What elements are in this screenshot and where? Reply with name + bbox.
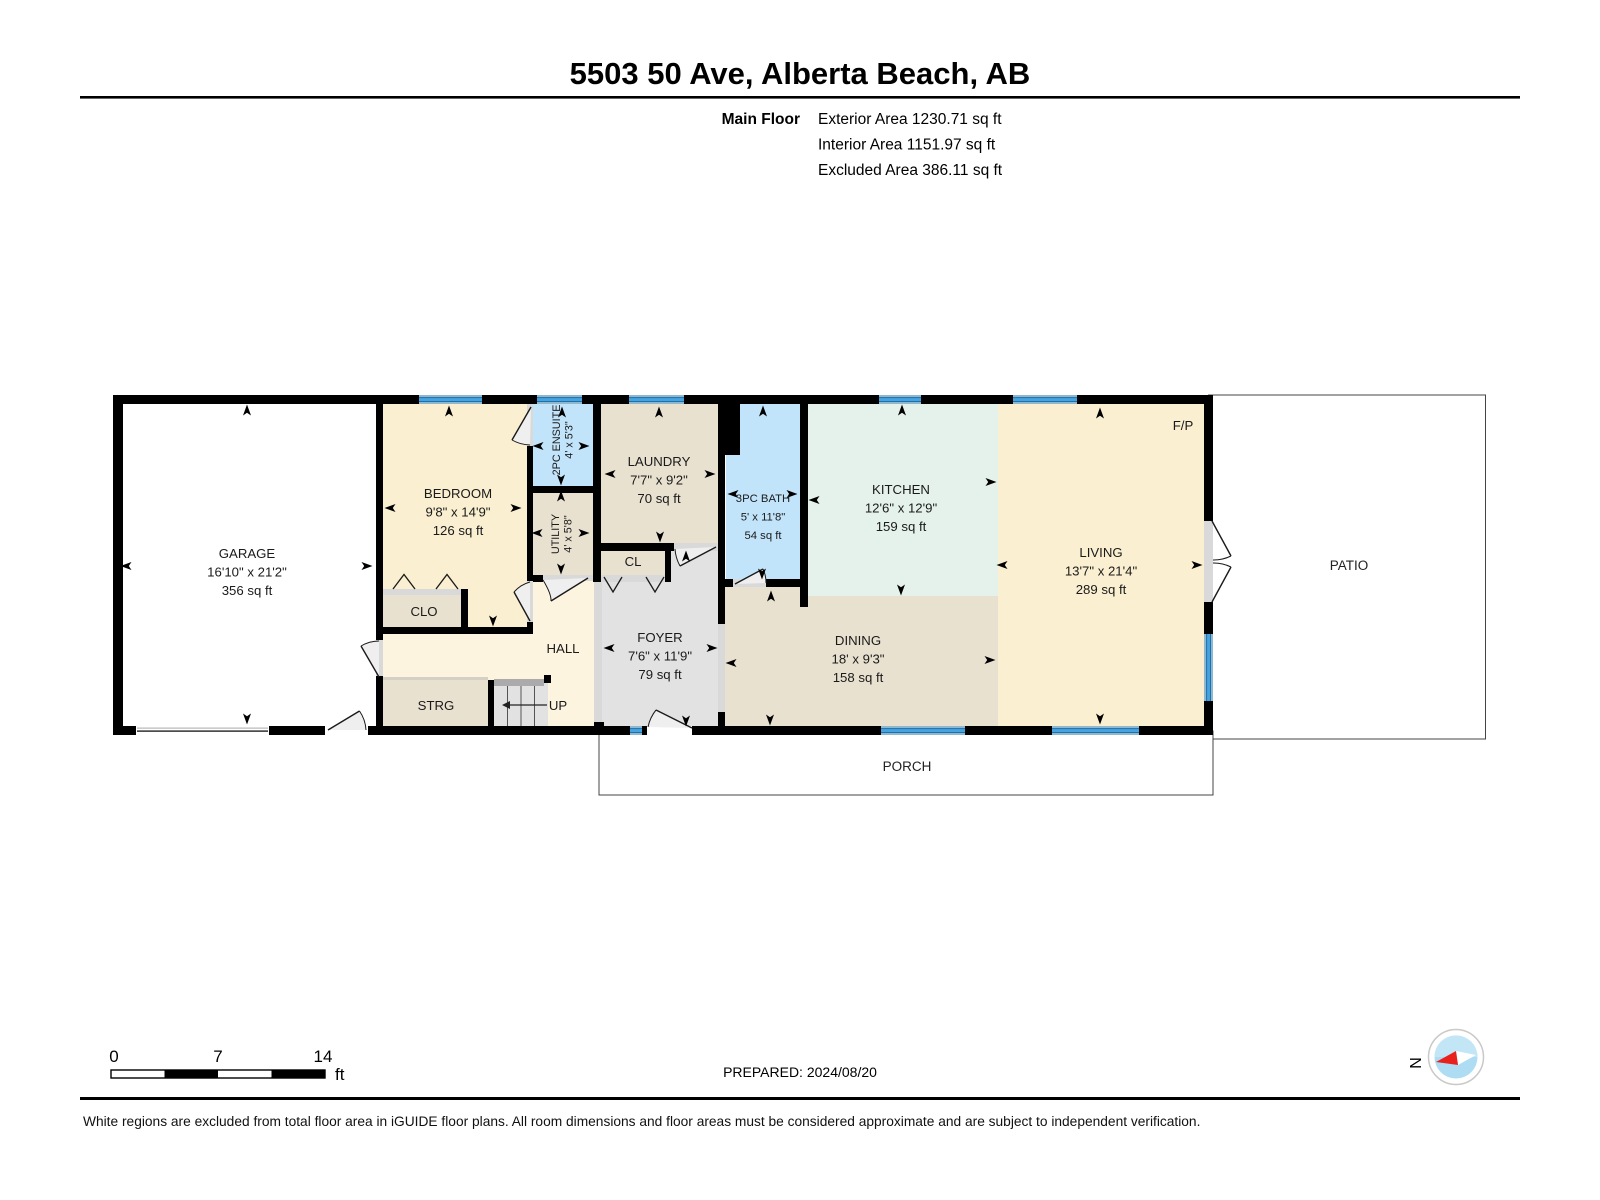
svg-text:18' x 9'3": 18' x 9'3" bbox=[832, 652, 885, 667]
svg-text:289 sq ft: 289 sq ft bbox=[1076, 582, 1127, 597]
svg-text:UTILITY: UTILITY bbox=[550, 514, 562, 554]
svg-text:159 sq ft: 159 sq ft bbox=[876, 519, 927, 534]
svg-text:7'7" x 9'2": 7'7" x 9'2" bbox=[630, 473, 688, 488]
svg-text:4' x 5'8": 4' x 5'8" bbox=[563, 515, 575, 553]
svg-text:2PC ENSUITE: 2PC ENSUITE bbox=[551, 405, 563, 476]
svg-text:356 sq ft: 356 sq ft bbox=[222, 583, 273, 598]
svg-text:12'6" x 12'9": 12'6" x 12'9" bbox=[865, 501, 938, 516]
svg-text:9'8" x 14'9": 9'8" x 14'9" bbox=[426, 505, 491, 520]
svg-text:14: 14 bbox=[314, 1047, 333, 1066]
svg-text:PORCH: PORCH bbox=[883, 759, 932, 774]
svg-text:7'6" x 11'9": 7'6" x 11'9" bbox=[628, 649, 692, 664]
svg-text:79 sq ft: 79 sq ft bbox=[638, 667, 682, 682]
svg-text:5503 50 Ave, Alberta Beach, AB: 5503 50 Ave, Alberta Beach, AB bbox=[570, 56, 1031, 91]
svg-text:Exterior Area 1230.71 sq ft: Exterior Area 1230.71 sq ft bbox=[818, 111, 1002, 128]
svg-text:7: 7 bbox=[213, 1047, 222, 1066]
svg-text:FOYER: FOYER bbox=[637, 630, 682, 645]
svg-text:Excluded Area 386.11 sq ft: Excluded Area 386.11 sq ft bbox=[818, 162, 1003, 179]
svg-text:54 sq ft: 54 sq ft bbox=[744, 530, 782, 542]
svg-text:PATIO: PATIO bbox=[1330, 558, 1369, 573]
svg-text:70 sq ft: 70 sq ft bbox=[637, 491, 681, 506]
svg-text:DINING: DINING bbox=[835, 633, 881, 648]
svg-text:CLO: CLO bbox=[410, 604, 437, 619]
svg-text:Main Floor: Main Floor bbox=[722, 111, 800, 128]
svg-text:LIVING: LIVING bbox=[1079, 545, 1122, 560]
svg-text:CL: CL bbox=[625, 554, 642, 569]
svg-text:13'7" x 21'4": 13'7" x 21'4" bbox=[1065, 564, 1138, 579]
svg-text:4' x 5'3": 4' x 5'3" bbox=[564, 421, 576, 459]
svg-text:White regions are excluded fro: White regions are excluded from total fl… bbox=[83, 1114, 1200, 1129]
svg-text:N: N bbox=[1408, 1057, 1425, 1069]
svg-text:5' x 11'8": 5' x 11'8" bbox=[741, 512, 786, 524]
svg-text:ft: ft bbox=[335, 1065, 345, 1084]
svg-text:0: 0 bbox=[109, 1047, 118, 1066]
svg-text:3PC BATH: 3PC BATH bbox=[736, 493, 790, 505]
svg-text:PREPARED: 2024/08/20: PREPARED: 2024/08/20 bbox=[723, 1064, 877, 1080]
svg-text:HALL: HALL bbox=[547, 641, 580, 656]
svg-text:Interior Area 1151.97 sq ft: Interior Area 1151.97 sq ft bbox=[818, 137, 996, 154]
svg-text:KITCHEN: KITCHEN bbox=[872, 482, 930, 497]
svg-text:158 sq ft: 158 sq ft bbox=[833, 670, 884, 685]
svg-text:F/P: F/P bbox=[1173, 418, 1194, 433]
svg-text:UP: UP bbox=[549, 698, 568, 713]
svg-text:LAUNDRY: LAUNDRY bbox=[628, 454, 691, 469]
svg-text:GARAGE: GARAGE bbox=[219, 546, 276, 561]
svg-text:16'10" x 21'2": 16'10" x 21'2" bbox=[207, 565, 287, 580]
svg-text:BEDROOM: BEDROOM bbox=[424, 486, 492, 501]
svg-text:126 sq ft: 126 sq ft bbox=[433, 523, 484, 538]
svg-text:STRG: STRG bbox=[418, 698, 455, 713]
